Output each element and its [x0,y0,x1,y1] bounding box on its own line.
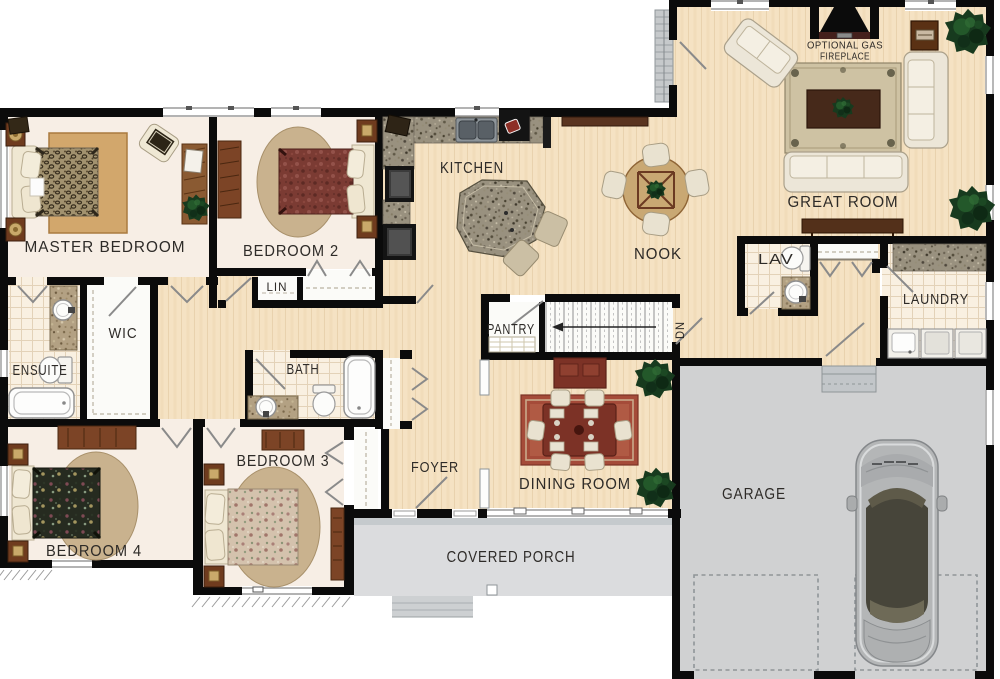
svg-text:DN: DN [675,321,687,339]
svg-text:ENSUITE: ENSUITE [13,362,68,379]
svg-text:LAV: LAV [758,251,794,268]
svg-text:BATH: BATH [287,361,320,378]
svg-text:NOOK: NOOK [634,246,682,263]
svg-text:DINING ROOM: DINING ROOM [519,476,631,493]
svg-text:PANTRY: PANTRY [487,321,535,338]
svg-text:LIN: LIN [267,280,288,294]
svg-text:BEDROOM 4: BEDROOM 4 [46,543,142,560]
svg-text:GARAGE: GARAGE [722,486,786,503]
svg-text:LAUNDRY: LAUNDRY [903,291,969,308]
svg-text:WIC: WIC [109,325,138,342]
svg-text:MASTER BEDROOM: MASTER BEDROOM [25,239,186,256]
svg-text:BEDROOM 2: BEDROOM 2 [243,243,339,260]
svg-text:COVERED PORCH: COVERED PORCH [447,549,576,566]
svg-text:GREAT ROOM: GREAT ROOM [788,194,899,211]
svg-text:KITCHEN: KITCHEN [440,160,504,177]
svg-text:FOYER: FOYER [411,459,459,476]
svg-text:BEDROOM 3: BEDROOM 3 [237,453,330,470]
svg-text:FIREPLACE: FIREPLACE [820,51,870,63]
